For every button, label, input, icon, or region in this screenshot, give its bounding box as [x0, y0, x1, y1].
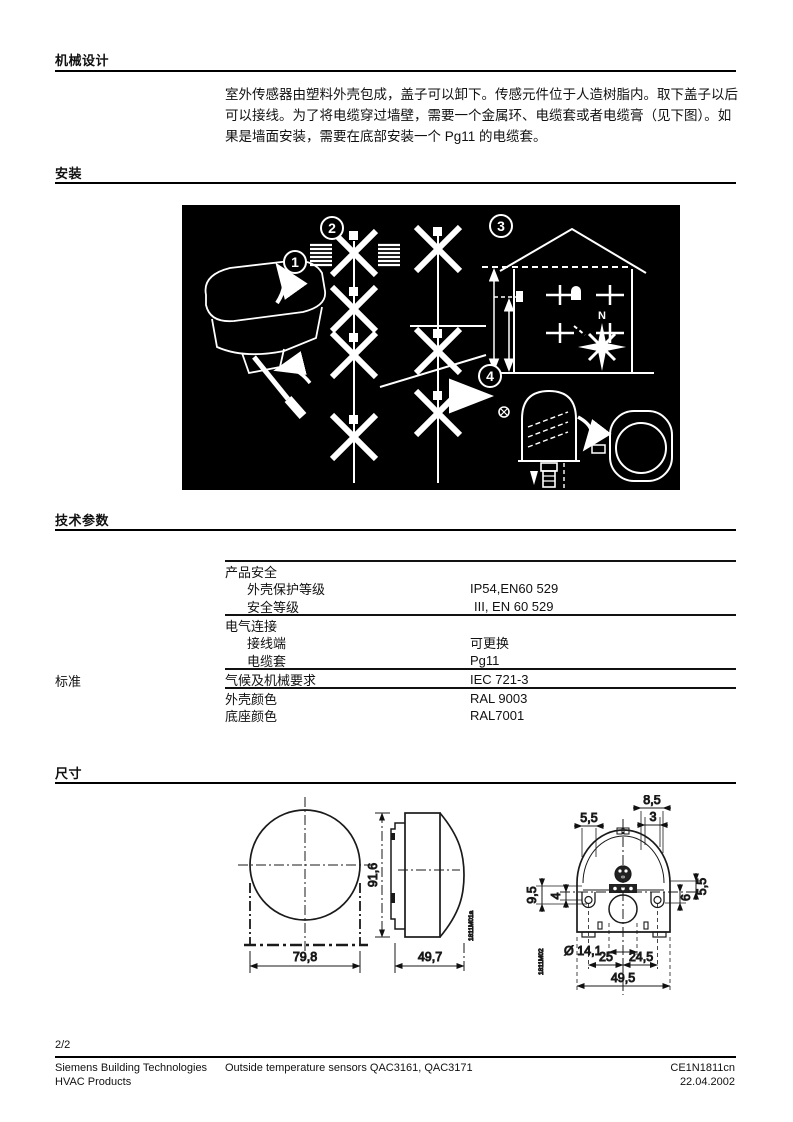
svg-text:49,7: 49,7 [418, 950, 442, 964]
side-view-drawing: 49,7 1811M01a [391, 813, 475, 973]
footer-doc-title: Outside temperature sensors QAC3161, QAC… [225, 1062, 473, 1074]
param-value: RAL 9003 [470, 691, 736, 706]
step-4-badge: 4 [479, 365, 501, 387]
svg-text:3: 3 [650, 810, 657, 824]
section-heading-tech-params: 技术参数 [55, 510, 109, 529]
page-number: 2/2 [55, 1039, 70, 1051]
footer-company-line2: HVAC Products [55, 1076, 131, 1088]
tech-params-table: 产品安全 外壳保护等级 IP54,EN60 529 安全等级 III, EN 6… [225, 560, 736, 724]
svg-text:5,5: 5,5 [580, 811, 597, 825]
svg-text:79,8: 79,8 [293, 950, 317, 964]
section-heading-installation: 安装 [55, 163, 82, 182]
param-value: IEC 721-3 [470, 672, 736, 687]
step-2-badge: 2 [321, 217, 343, 239]
section-rule [55, 782, 736, 784]
param-label: 电缆套 [225, 651, 470, 670]
step-1-badge: 1 [284, 251, 306, 273]
svg-text:24,5: 24,5 [629, 950, 653, 964]
param-label: 底座颜色 [225, 706, 470, 725]
param-value: IP54,EN60 529 [470, 581, 736, 596]
svg-text:1: 1 [291, 254, 299, 270]
svg-text:25: 25 [599, 950, 613, 964]
param-label: 电气连接 [225, 616, 470, 635]
table-row: 外壳保护等级 IP54,EN60 529 [225, 579, 736, 597]
installation-figure-svg: 1 2 [182, 205, 680, 490]
svg-text:1811M02: 1811M02 [538, 948, 545, 975]
svg-text:N: N [598, 310, 606, 322]
step-3-badge: 3 [490, 215, 512, 237]
param-value: RAL7001 [470, 708, 736, 723]
svg-text:3: 3 [497, 218, 505, 234]
svg-text:Ø 14,1: Ø 14,1 [564, 944, 602, 958]
svg-text:91,6: 91,6 [366, 863, 380, 887]
svg-text:6: 6 [679, 894, 693, 901]
section-heading-dimensions: 尺寸 [55, 763, 82, 782]
svg-text:4: 4 [549, 892, 563, 899]
installation-figure: 1 2 [182, 205, 680, 490]
footer-doc-date: 22.04.2002 [680, 1076, 735, 1088]
svg-text:5,5: 5,5 [695, 878, 709, 895]
param-value: Pg11 [470, 653, 736, 668]
param-label: 外壳颜色 [225, 689, 470, 708]
svg-text:8,5: 8,5 [643, 795, 660, 807]
svg-text:9,5: 9,5 [525, 886, 539, 903]
rear-view-drawing: 5,5 8,5 3 9,5 4 6 5,5 [525, 795, 709, 995]
table-row: 产品安全 [225, 562, 736, 580]
dimension-drawing-svg: 79,8 91,6 49,7 1811M01a [230, 795, 745, 1007]
mechanical-description: 室外传感器由塑料外壳包成，盖子可以卸下。传感元件位于人造树脂内。取下盖子以后 可… [225, 84, 737, 147]
paragraph-line: 可以接线。为了将电缆穿过墙壁，需要一个金属环、电缆套或者电缆膏（见下图）。如 [225, 105, 737, 126]
table-row: 电缆套 Pg11 [225, 651, 736, 669]
param-label: 安全等级 [225, 597, 470, 616]
param-label: 接线端 [225, 633, 470, 652]
dimension-drawing: 79,8 91,6 49,7 1811M01a [230, 795, 745, 1012]
param-label: 气候及机械要求 [225, 670, 470, 689]
footer-doc-code: CE1N1811cn [670, 1062, 735, 1074]
svg-text:1811M01a: 1811M01a [468, 910, 475, 941]
param-label: 外壳保护等级 [225, 579, 470, 598]
footer-rule [55, 1056, 736, 1058]
paragraph-line: 室外传感器由塑料外壳包成，盖子可以卸下。传感元件位于人造树脂内。取下盖子以后 [225, 84, 737, 105]
section-rule [55, 182, 736, 184]
param-label: 产品安全 [225, 562, 470, 581]
table-row: 安全等级 III, EN 60 529 [225, 597, 736, 615]
side-label-standard: 标准 [55, 671, 81, 690]
svg-text:2: 2 [328, 220, 336, 236]
svg-text:4: 4 [486, 368, 494, 384]
section-rule [55, 70, 736, 72]
front-view-drawing: 79,8 91,6 [238, 797, 390, 973]
section-heading-mechanical: 机械设计 [55, 50, 109, 69]
param-value: III, EN 60 529 [470, 599, 736, 614]
section-rule [55, 529, 736, 531]
paragraph-line: 果是墙面安装，需要在底部安装一个 Pg11 的电缆套。 [225, 126, 737, 147]
table-row: 气候及机械要求 IEC 721-3 [225, 670, 736, 688]
param-value: 可更换 [470, 633, 736, 652]
table-row: 电气连接 [225, 616, 736, 634]
table-row: 底座颜色 RAL7001 [225, 706, 736, 724]
svg-text:49,5: 49,5 [611, 971, 635, 985]
table-row: 外壳颜色 RAL 9003 [225, 689, 736, 707]
footer-company-line1: Siemens Building Technologies [55, 1062, 207, 1074]
table-row: 接线端 可更换 [225, 633, 736, 651]
